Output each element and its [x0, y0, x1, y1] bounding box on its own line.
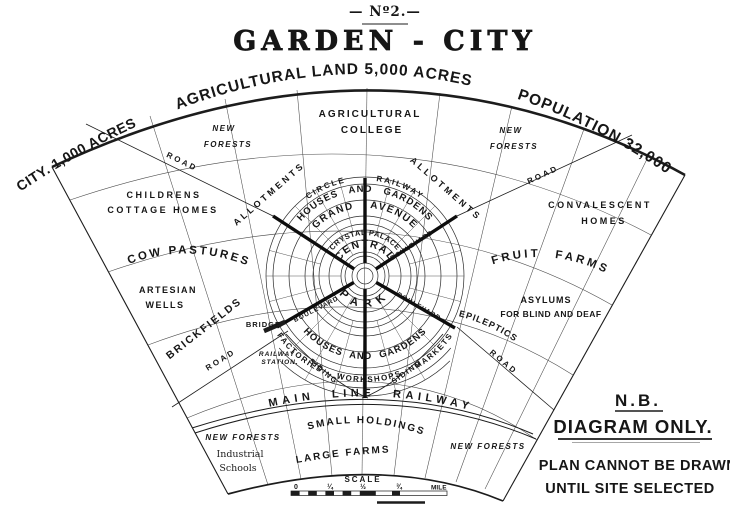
new-forests-top-right: NEW FORESTS — [490, 126, 538, 151]
new-forests-top-left: NEW FORESTS — [204, 124, 252, 149]
svg-text:HOMES: HOMES — [581, 216, 627, 226]
svg-text:½: ½ — [360, 483, 366, 491]
plan-cannot-be-drawn-label: PLAN CANNOT BE DRAWN — [539, 458, 730, 474]
agricultural-college: AGRICULTURAL COLLEGE — [319, 109, 422, 136]
road-se: ROAD — [488, 348, 519, 376]
diagram-canvas: — Nº2.— GARDEN - CITY CITY. 1,000 ACRES … — [0, 0, 730, 514]
svg-text:ARTESIAN: ARTESIAN — [139, 285, 197, 295]
diagram-only-label: DIAGRAM ONLY. — [553, 416, 712, 437]
railway-station-label: RAILWAY STATION. — [259, 351, 299, 366]
svg-text:ASYLUMS: ASYLUMS — [520, 295, 571, 305]
convalescent-homes: CONVALESCENT HOMES — [548, 200, 652, 226]
bridge-label: BRIDGE — [246, 320, 281, 329]
svg-text:FOR BLIND AND DEAF: FOR BLIND AND DEAF — [500, 309, 601, 319]
until-site-selected-label: UNTIL SITE SELECTED — [545, 481, 715, 497]
svg-text:FORESTS: FORESTS — [490, 142, 538, 151]
allotments-left-label: ALLOTMENTS — [231, 160, 307, 228]
scale-tick-labels: 0 ¼ ½ ¾ MILE — [294, 483, 447, 492]
nb-label: N.B. — [615, 391, 661, 410]
large-farms: LARGE FARMS — [295, 444, 391, 466]
svg-text:CHILDRENS: CHILDRENS — [126, 190, 201, 200]
diagram-number: — Nº2.— — [349, 4, 421, 20]
road-sw: ROAD — [204, 347, 237, 372]
childrens-cottage-homes: CHILDRENS COTTAGE HOMES — [107, 190, 218, 215]
scale-label: SCALE — [344, 475, 381, 484]
road-ne: ROAD — [526, 164, 560, 186]
agricultural-land-label: AGRICULTURAL LAND 5,000 ACRES — [173, 61, 474, 113]
population-label: POPULATION 32,000 — [516, 86, 675, 177]
svg-text:¾: ¾ — [396, 483, 403, 491]
cow-pastures: COW PASTURES — [126, 244, 252, 268]
svg-text:WELLS: WELLS — [146, 300, 185, 310]
svg-text:CONVALESCENT: CONVALESCENT — [548, 200, 652, 210]
page-title: GARDEN - CITY — [233, 26, 537, 57]
artesian-wells: ARTESIAN WELLS — [139, 285, 197, 310]
title-block: — Nº2.— GARDEN - CITY — [233, 4, 537, 57]
svg-text:RAILWAY: RAILWAY — [259, 351, 295, 358]
small-holdings: SMALL HOLDINGS — [306, 415, 426, 438]
svg-text:Schools: Schools — [219, 463, 256, 474]
svg-text:FORESTS: FORESTS — [204, 140, 252, 149]
svg-text:AGRICULTURAL: AGRICULTURAL — [319, 109, 422, 120]
industrial-schools: Industrial Schools — [216, 449, 263, 474]
scale-unit: MILE — [431, 485, 447, 492]
city-acres-label: CITY. 1,000 ACRES — [13, 114, 138, 194]
asylums: ASYLUMS FOR BLIND AND DEAF — [500, 295, 601, 319]
note-block: N.B. DIAGRAM ONLY. PLAN CANNOT BE DRAWN … — [539, 391, 730, 497]
svg-text:Industrial: Industrial — [216, 449, 263, 460]
svg-text:STATION.: STATION. — [261, 359, 298, 366]
boulevard-sw-label: BOULEVARD — [293, 295, 340, 324]
garden-city-diagram: — Nº2.— GARDEN - CITY CITY. 1,000 ACRES … — [0, 0, 730, 514]
svg-text:NEW: NEW — [499, 126, 522, 135]
svg-text:¼: ¼ — [327, 483, 334, 491]
fruit-farms: FRUIT FARMS — [490, 248, 611, 277]
svg-text:0: 0 — [294, 484, 298, 491]
svg-text:COTTAGE HOMES: COTTAGE HOMES — [107, 205, 218, 215]
main-line-railway-label: MAIN LINE RAILWAY — [267, 387, 474, 413]
svg-text:COLLEGE: COLLEGE — [341, 125, 403, 136]
new-forests-bottom-left: NEW FORESTS — [205, 433, 280, 442]
svg-text:NEW: NEW — [212, 124, 235, 133]
scale-bar — [291, 491, 447, 503]
new-forests-bottom-right: NEW FORESTS — [450, 442, 525, 451]
city-labels: CIRCLE RAILWAY HOUSES AND GARDENS GRAND … — [231, 155, 484, 386]
boulevard-se-label: BOULEVARD — [395, 291, 442, 322]
